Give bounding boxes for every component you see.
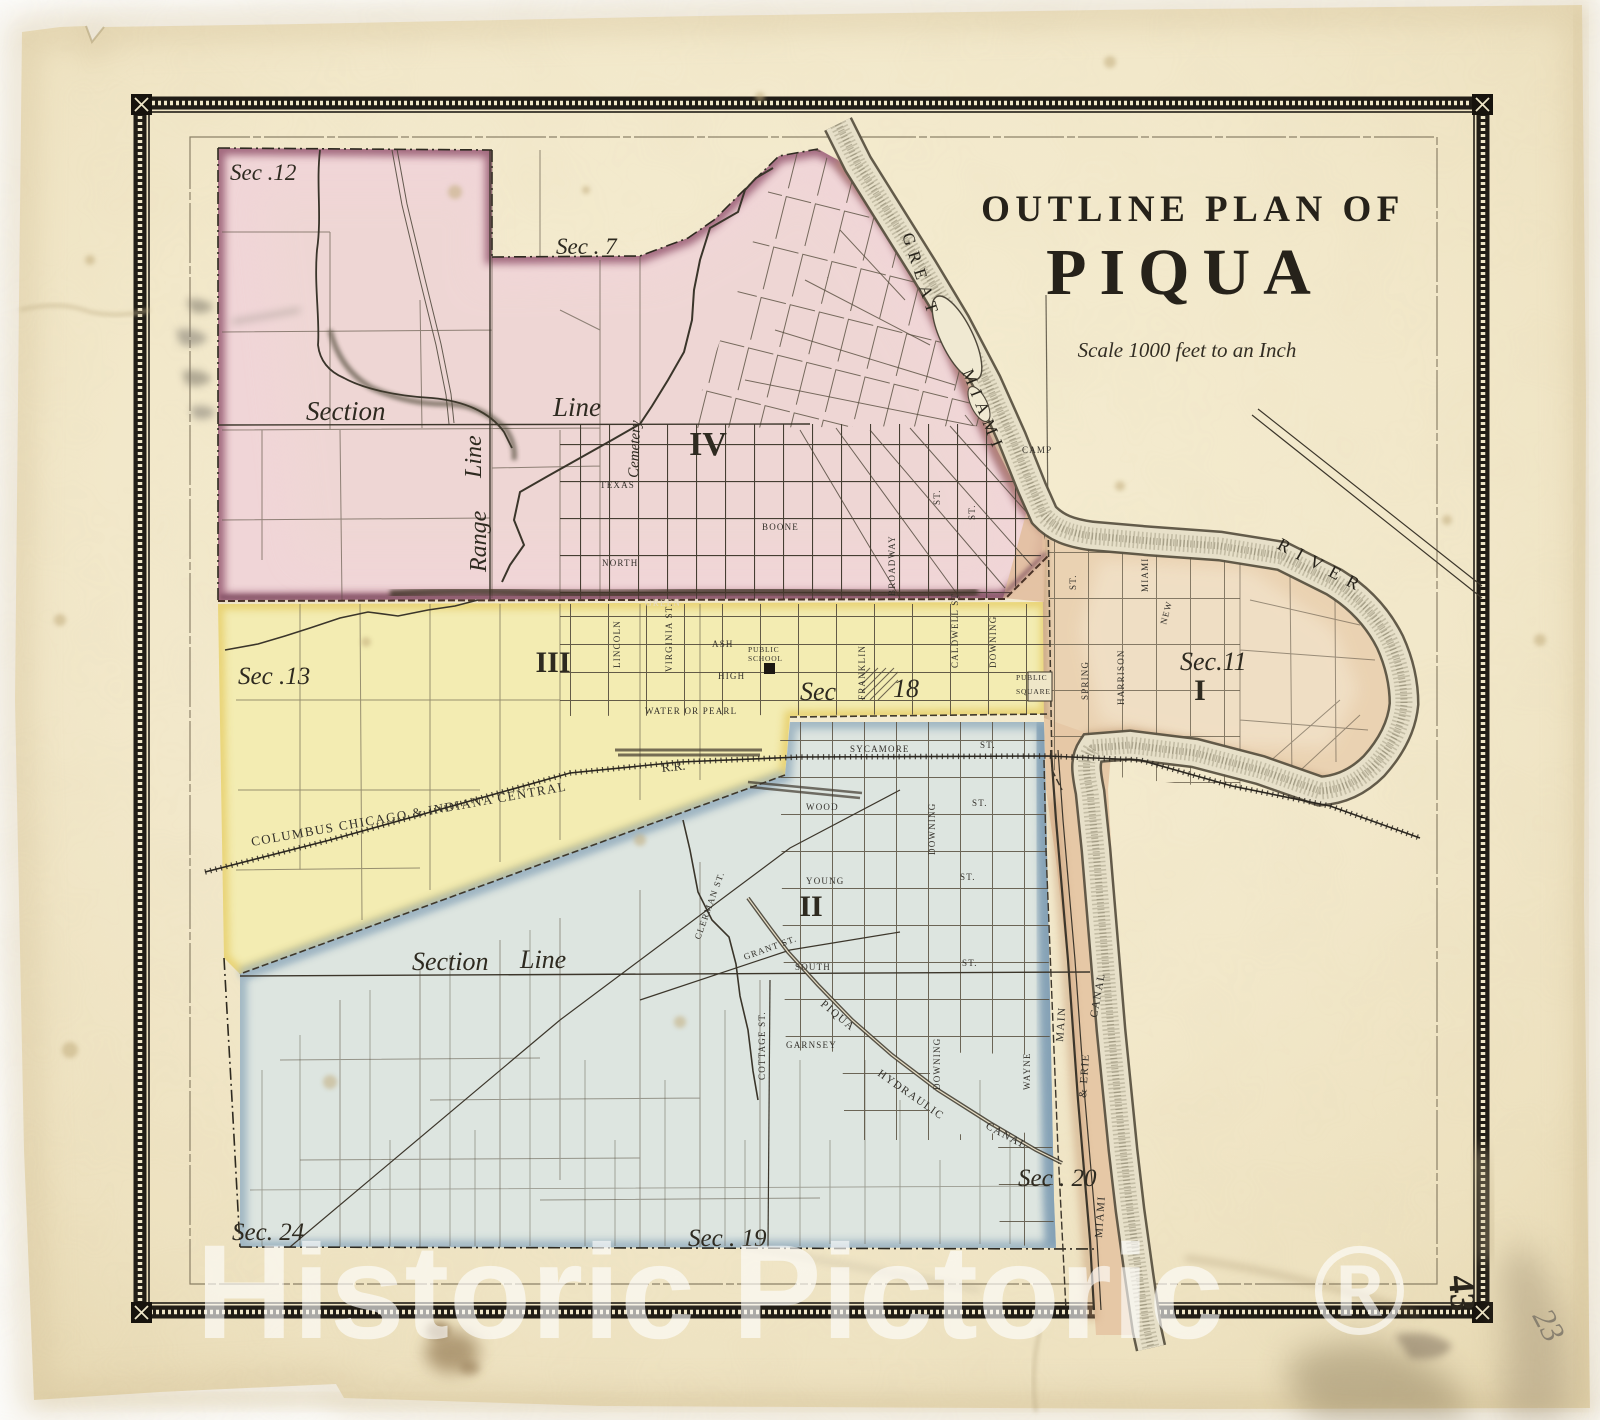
- svg-text:NORTH: NORTH: [602, 558, 638, 568]
- svg-text:SPRING: SPRING: [1080, 661, 1090, 700]
- svg-text:HIGH: HIGH: [718, 671, 745, 681]
- svg-text:ASH: ASH: [712, 639, 734, 649]
- svg-text:DOWNING: DOWNING: [988, 616, 998, 668]
- svg-text:GARNSEY: GARNSEY: [786, 1040, 837, 1050]
- svg-text:I: I: [1194, 674, 1206, 707]
- svg-text:ST.: ST.: [1068, 574, 1078, 590]
- svg-text:®: ®: [1313, 1220, 1406, 1361]
- svg-text:Cemetery: Cemetery: [626, 420, 644, 478]
- svg-text:VIRGINIA ST.: VIRGINIA ST.: [664, 603, 674, 672]
- svg-text:18: 18: [893, 674, 919, 703]
- svg-text:Sec . 20: Sec . 20: [1018, 1165, 1097, 1192]
- svg-text:Section: Section: [412, 947, 489, 976]
- svg-text:TEXAS: TEXAS: [600, 480, 635, 490]
- svg-text:II: II: [799, 890, 822, 923]
- svg-text:ST.: ST.: [960, 872, 976, 882]
- svg-text:OUTLINE PLAN OF: OUTLINE PLAN OF: [981, 189, 1405, 230]
- svg-text:HARRISON: HARRISON: [1116, 649, 1126, 705]
- svg-text:Scale 1000 feet to an Inch: Scale 1000 feet to an Inch: [1078, 338, 1297, 362]
- svg-text:MAIN: MAIN: [1054, 1006, 1068, 1042]
- svg-text:PUBLIC: PUBLIC: [748, 645, 779, 654]
- svg-text:MIAMI: MIAMI: [1140, 558, 1150, 593]
- svg-text:ST.: ST.: [932, 489, 942, 505]
- svg-text:ST.: ST.: [972, 798, 988, 808]
- svg-text:WOOD: WOOD: [806, 802, 839, 812]
- svg-text:SOUTH: SOUTH: [795, 962, 831, 972]
- svg-text:WATER OR PEARL: WATER OR PEARL: [645, 706, 737, 716]
- svg-text:PIQUA: PIQUA: [1046, 236, 1324, 309]
- svg-text:CAMP: CAMP: [1022, 445, 1052, 455]
- svg-text:WAYNE: WAYNE: [1022, 1052, 1032, 1090]
- svg-text:ST.: ST.: [980, 740, 996, 750]
- svg-text:LINCOLN: LINCOLN: [612, 620, 622, 668]
- svg-text:BROADWAY: BROADWAY: [887, 535, 897, 596]
- svg-text:SCHOOL: SCHOOL: [748, 654, 783, 663]
- svg-text:ST.: ST.: [962, 958, 978, 968]
- svg-text:FRANKLIN: FRANKLIN: [857, 645, 867, 700]
- svg-text:Sec: Sec: [800, 677, 837, 706]
- svg-text:Sec .12: Sec .12: [230, 160, 296, 185]
- svg-text:Line: Line: [552, 392, 601, 422]
- svg-text:III: III: [535, 646, 570, 679]
- svg-text:DOWNING: DOWNING: [927, 803, 937, 855]
- svg-text:CALDWELL ST.: CALDWELL ST.: [950, 590, 960, 668]
- svg-text:R.R.: R.R.: [661, 758, 686, 775]
- svg-text:Line: Line: [519, 945, 566, 974]
- svg-text:SYCAMORE: SYCAMORE: [850, 744, 910, 754]
- svg-text:PUBLIC: PUBLIC: [1016, 673, 1047, 682]
- svg-text:Section: Section: [306, 396, 385, 426]
- svg-text:Sec .13: Sec .13: [238, 663, 310, 690]
- svg-text:Line: Line: [461, 435, 487, 479]
- svg-text:Sec . 7: Sec . 7: [556, 234, 618, 259]
- svg-text:Historic Pictoric: Historic Pictoric: [196, 1218, 1224, 1367]
- svg-text:DOWNING: DOWNING: [932, 1038, 942, 1090]
- svg-text:IV: IV: [689, 426, 727, 463]
- svg-text:SQUARE: SQUARE: [1016, 687, 1051, 696]
- svg-text:GREEN: GREEN: [645, 598, 681, 608]
- svg-text:YOUNG: YOUNG: [806, 876, 845, 886]
- svg-text:Range: Range: [466, 510, 492, 573]
- svg-text:43: 43: [1441, 1274, 1483, 1313]
- svg-text:BOONE: BOONE: [762, 522, 799, 532]
- svg-text:Sec.11: Sec.11: [1180, 647, 1247, 676]
- svg-text:ST.: ST.: [967, 504, 977, 520]
- svg-text:COTTAGE ST.: COTTAGE ST.: [757, 1011, 767, 1080]
